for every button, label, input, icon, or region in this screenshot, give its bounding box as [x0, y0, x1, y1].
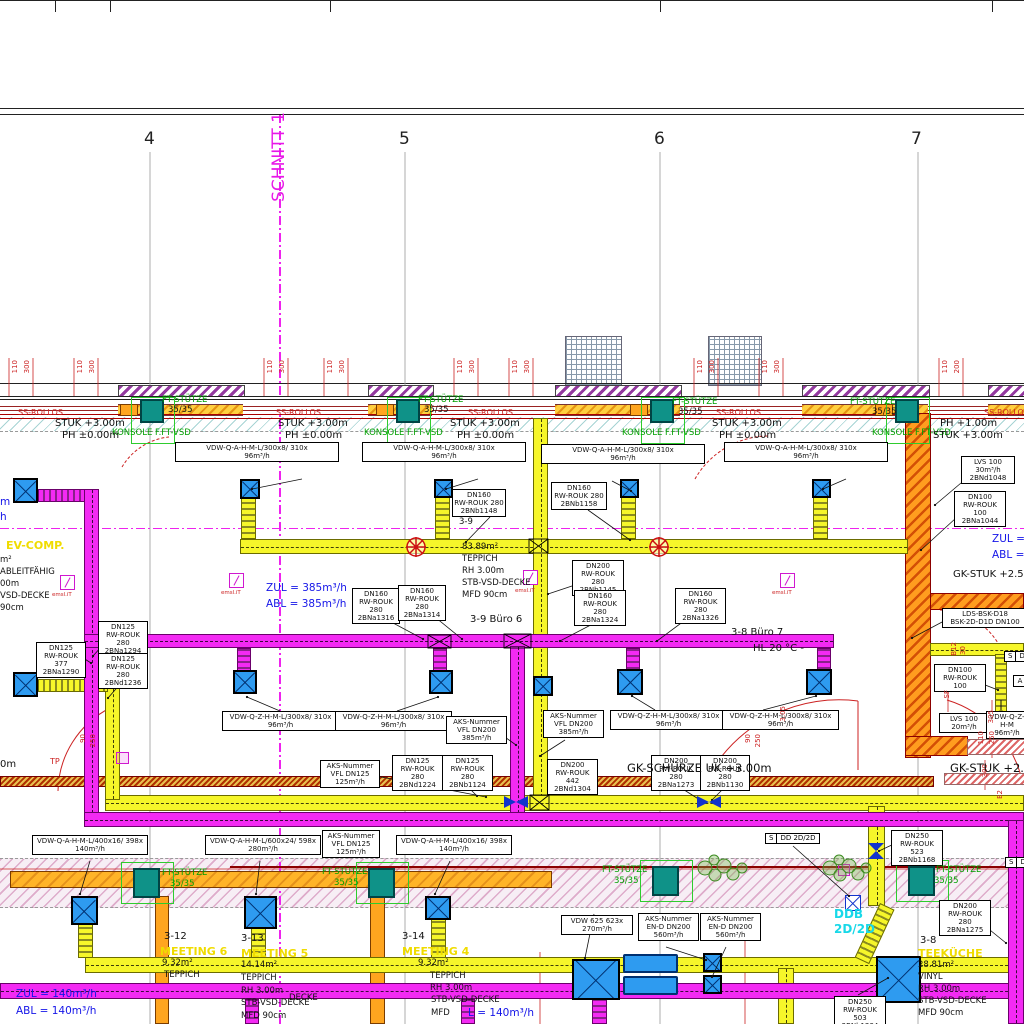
flag-label: SDD 2D/2D: [765, 833, 820, 844]
annotation-t9: 90cm: [0, 604, 24, 613]
diffuser-icon: [429, 670, 453, 694]
flag-cell: DD 2D/2D: [777, 834, 818, 843]
diffuser-icon: [620, 479, 639, 498]
annotation-rv: 110: [942, 360, 950, 373]
sheet-border-line: [0, 114, 1024, 115]
ddb-symbol-icon: [845, 895, 861, 911]
annotation-t9: MFD 90cm: [918, 1009, 963, 1018]
annotation-box: DN160 RW-ROUK 280 2BNa1326: [675, 588, 726, 624]
diffuser-icon: [233, 670, 257, 694]
sheet-border-tick: [110, 0, 111, 12]
annotation-t10: PH ±0.00m: [457, 431, 514, 442]
exhaust-duct-riser: [510, 646, 525, 814]
annotation-rv: 110: [12, 360, 20, 373]
annotation-b: ABL =: [992, 550, 1024, 561]
annotation-rv: 300: [339, 360, 347, 373]
vsd-actuator-icon: [229, 573, 244, 588]
annotation-t9: TEPPICH: [462, 555, 498, 564]
annotation-rv: 90: [745, 734, 753, 743]
annotation-b: m: [0, 497, 10, 508]
supply-flex-riser: [78, 924, 93, 958]
crossover-box: [572, 959, 620, 1000]
annotation-rt: emsl.iT: [515, 589, 535, 595]
annotation-rv: 110: [762, 360, 770, 373]
window-band: [0, 404, 118, 414]
annotation-box: DN125 RW-ROUK 377 2BNa1290: [36, 642, 86, 678]
grid-axis-5: 5: [399, 130, 410, 148]
diffuser-icon: [71, 896, 98, 925]
annotation-rv: 300: [24, 360, 32, 373]
supply-duct-main: [240, 539, 908, 554]
hvac-plan-canvas: 4567SCHNITT 1110300110300110300110300110…: [0, 0, 1024, 1024]
annotation-box: LVS 100 20m³/h: [939, 713, 989, 733]
exhaust-duct-main-lower: [84, 812, 1024, 827]
annotation-box: DN160 RW-ROUK 280 2BNa1316: [352, 588, 400, 624]
orange-wall-corner: [905, 736, 968, 756]
annotation-b: ZUL =: [992, 534, 1024, 545]
column-marker: [121, 862, 174, 904]
annotation-box: DN200 RW-ROUK 280 2BNb1145: [572, 560, 624, 596]
wall-hatch-band: [967, 739, 1024, 755]
annotation-box: DN160 RW-ROUK 280 2BNa1314: [398, 585, 446, 621]
annotation-b: L = 140m³/h: [468, 1008, 534, 1019]
supply-flex-riser: [813, 497, 828, 539]
annotation-box: VDW-Q-A-H-M-L/300x8/ 310x 96m³/h: [175, 442, 339, 462]
diffuser-icon: [425, 896, 451, 920]
annotation-box: AKS-Nummer VFL DN200 385m³/h: [446, 716, 507, 744]
diffuser-icon: [13, 672, 38, 697]
annotation-box: A: [1013, 675, 1024, 687]
annotation-t9: STB-VSD-DECKE: [462, 579, 531, 588]
annotation-rv: SF: [944, 690, 952, 698]
vsd-actuator-icon: [523, 570, 538, 585]
supply-duct-vertical: [105, 688, 120, 800]
room-label: 3-8: [920, 936, 936, 947]
annotation-t9: 00m: [0, 580, 19, 589]
window-band: [243, 404, 368, 414]
grid-axis-4: 4: [144, 130, 155, 148]
vsd-actuator-icon: [780, 573, 795, 588]
annotation-box: AKS-Nummer VFL DN125 125m³/h: [322, 830, 380, 858]
column-marker: [356, 862, 409, 904]
annotation-box: AKS-Nummer EN-D DN200 560m³/h: [638, 913, 699, 941]
annotation-box: VDW-Q-A-H-M-L/300x8/ 310x 96m³/h: [724, 442, 888, 462]
sheet-border-tick: [55, 0, 56, 12]
annotation-b: h: [0, 512, 7, 523]
annotation-rv: 300: [774, 360, 782, 373]
wall-beam: [10, 871, 552, 888]
annotation-t9: TEPPICH: [241, 974, 277, 983]
supply-flex-riser: [435, 497, 450, 539]
vsd-box-icon: [116, 752, 129, 764]
mesh-grille: [565, 336, 622, 386]
marker-box-icon: [838, 864, 850, 876]
exhaust-flex-drop: [592, 999, 607, 1024]
annotation-box: VDW 625 623x 270m³/h: [561, 915, 633, 935]
gk-stuk-shelf: [930, 593, 1024, 610]
annotation-t9: ABLEITFÄHIG: [0, 568, 55, 577]
exhaust-flex-drop: [245, 999, 259, 1024]
diffuser-icon: [244, 896, 277, 929]
facade-line: [0, 383, 1024, 384]
annotation-t11: GK-SCHÜRZE UK +3.00m: [627, 762, 772, 774]
gk-band-right: [944, 773, 1024, 785]
annotation-rv: 250: [755, 734, 763, 747]
diffuser-icon: [13, 478, 38, 503]
room-name: EV-COMP.: [6, 540, 64, 552]
annotation-rt: emsl.iT: [772, 591, 792, 597]
damper-box-icon: [703, 953, 722, 972]
annotation-t10: PH ±0.00m: [62, 431, 119, 442]
annotation-b: ABL = 140m³/h: [16, 1006, 96, 1017]
annotation-box: VDW-Q-Z-H-M 96m³/h: [986, 711, 1024, 739]
annotation-rt: emsl.iT: [52, 593, 72, 599]
annotation-box: VDW-Q-Z-H-M-L/300x8/ 310x 96m³/h: [722, 710, 839, 730]
sheet-border-tick: [330, 0, 331, 12]
annotation-box: AKS-Nummer EN-D DN200 560m³/h: [700, 913, 761, 941]
annotation-rv: 110: [512, 360, 520, 373]
annotation-t10: PH ±0.00m: [719, 431, 776, 442]
annotation-t9: VSD-DECKE: [0, 592, 50, 601]
annotation-box: AKS-Nummer VFL DN200 385m³/h: [543, 710, 604, 738]
annotation-rv: 300: [89, 360, 97, 373]
supply-flex-riser: [241, 497, 256, 539]
window-band: [432, 404, 555, 414]
annotation-box: DN160 RW-ROUK 280 2BNb1158: [551, 482, 607, 510]
annotation-box: VDW-Q-A-H-M-L/600x24/ 598x 280m³/h: [205, 835, 321, 855]
diffuser-icon: [812, 479, 831, 498]
annotation-t9: MFD: [431, 1009, 450, 1018]
annotation-rt: emsl.iT: [221, 591, 241, 597]
annotation-t9: 3-9: [459, 518, 473, 527]
exhaust-duct-vertical-right: [1008, 820, 1024, 1024]
annotation-box: VDW-Q-A-H-M-L/300x8/ 310x 96m³/h: [362, 442, 526, 462]
column-marker: [640, 860, 693, 902]
column-marker: [641, 397, 685, 444]
room-label: 3-14: [402, 932, 425, 943]
exhaust-flex-branch: [38, 489, 86, 502]
annotation-box: VDW-Q-Z-H-M-L/300x8/ 310x 96m³/h: [335, 711, 452, 731]
supply-flex-riser: [431, 918, 446, 958]
annotation-r: TP: [50, 758, 60, 767]
exhaust-flex-drop: [461, 999, 475, 1024]
annotation-rv: 300: [469, 360, 477, 373]
annotation-rv: 110: [457, 360, 465, 373]
exhaust-duct-main: [84, 634, 834, 648]
annotation-box: DN100 RW-ROUK 100 2BNa1044: [954, 491, 1006, 527]
sheet-border-line: [0, 108, 1024, 109]
annotation-t9: VINYL: [918, 973, 943, 982]
annotation-rv: 305: [988, 710, 996, 723]
flag-cell: S: [766, 834, 777, 843]
supply-flex-riser: [621, 497, 636, 539]
annotation-rv: 110: [77, 360, 85, 373]
column-marker: [131, 397, 175, 444]
sheet-border-tick: [992, 0, 993, 12]
silencer: [623, 976, 678, 995]
annotation-box: LVS 100 30m³/h 2BNd1048: [961, 456, 1015, 484]
annotation-t10: 0m: [0, 760, 16, 771]
annotation-t10: STUK +3.00m: [933, 431, 1003, 442]
damper-box-icon: [703, 975, 722, 994]
window-band: [680, 404, 802, 414]
annotation-rv: 300: [524, 360, 532, 373]
diffuser-icon: [876, 956, 921, 1003]
column-marker: [886, 397, 930, 444]
annotation-t10: PH ±0.00m: [285, 431, 342, 442]
axis-dash-line: [0, 528, 1024, 529]
annotation-t9: RH 3.00m: [462, 567, 504, 576]
grid-axis-6: 6: [654, 130, 665, 148]
annotation-box: VDW-Q-A-H-M-L/300x8/ 310x 96m³/h: [541, 444, 705, 464]
annotation-box: DN160 RW-ROUK 280 2BNb1148: [452, 489, 506, 517]
mesh-grille: [708, 336, 762, 386]
annotation-box: LDS-BSK-D18 BSK-2D-D1D DN100: [942, 608, 1024, 628]
room-label: 3-9 Büro 6: [470, 615, 522, 626]
annotation-box: DN100 RW-ROUK 100: [934, 664, 986, 692]
grid-axis-7: 7: [911, 130, 922, 148]
sheet-border-line: [0, 0, 1024, 1]
annotation-box: VDW-Q-A-H-M-L/400x16/ 398x 140m³/h: [32, 835, 148, 855]
supply-duct-main-lower: [105, 795, 1024, 811]
annotation-t10: GK-STUK +2.58: [953, 570, 1024, 581]
annotation-t9: MFD 90cm: [462, 591, 507, 600]
sheet-border-tick: [660, 0, 661, 12]
annotation-rv: 110: [697, 360, 705, 373]
supply-flex-diagonal: [855, 903, 895, 964]
diffuser-icon: [533, 676, 553, 696]
annotation-rv: 3.05: [780, 706, 788, 722]
supply-duct-riser-main: [533, 418, 548, 798]
window-band: [928, 404, 988, 414]
diffuser-icon: [617, 669, 643, 695]
column-marker: [387, 397, 431, 444]
vsd-actuator-icon: [60, 575, 75, 590]
annotation-box: DN160 RW-ROUK 280 2BNa1324: [574, 590, 626, 626]
annotation-rv: 110: [267, 360, 275, 373]
annotation-t9: TEPPICH: [430, 972, 466, 981]
supply-flex-drop: [995, 654, 1007, 712]
gk-schuerze-band: [0, 776, 934, 787]
annotation-t9: m²: [0, 556, 12, 565]
diffuser-icon: [434, 479, 453, 498]
supply-duct-branch: [930, 643, 1024, 656]
diffuser-icon: [240, 479, 260, 499]
exhaust-duct-bottom: [0, 983, 1024, 999]
annotation-rv: 110: [327, 360, 335, 373]
annotation-rv: 200: [954, 360, 962, 373]
column-marker: [896, 860, 949, 902]
silencer: [623, 954, 678, 973]
supply-flex-riser: [251, 928, 266, 958]
annotation-box: VDW-Q-A-H-M-L/400x16/ 398x 140m³/h: [396, 835, 512, 855]
annotation-box: VDW-Q-Z-H-M-L/300x8/ 310x 96m³/h: [610, 710, 727, 730]
orange-wall-vertical: [905, 413, 931, 758]
diffuser-icon: [806, 669, 832, 695]
exhaust-duct-vertical: [84, 489, 99, 819]
